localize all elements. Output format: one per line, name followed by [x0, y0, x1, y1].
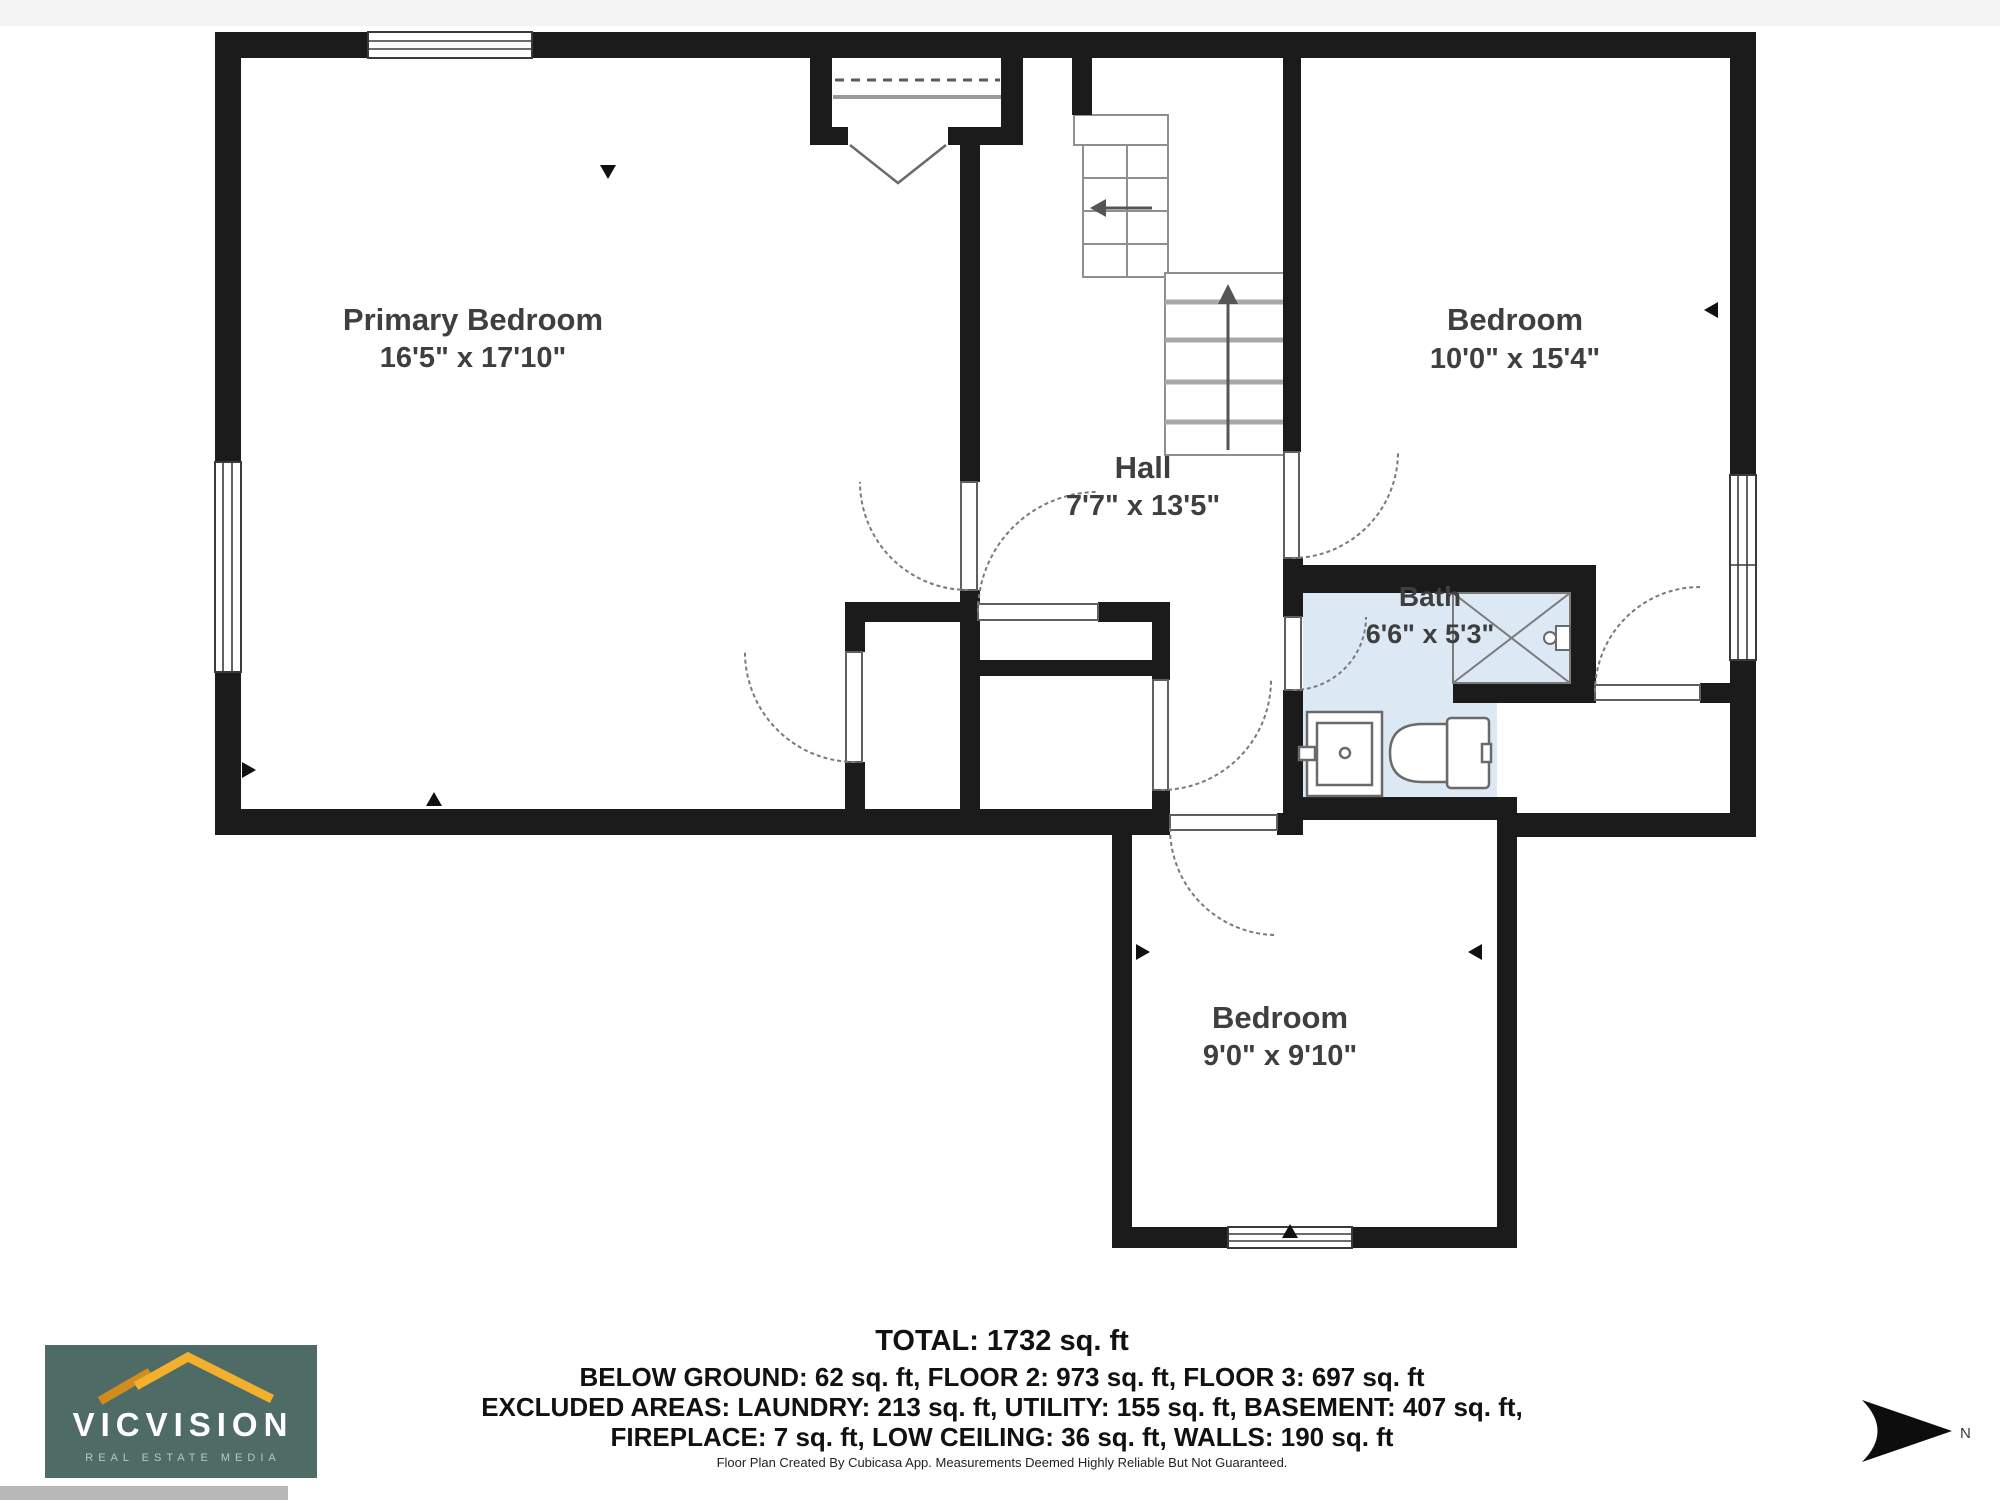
toilet [1390, 718, 1491, 788]
staircase [1074, 115, 1288, 455]
footer-disclaimer: Floor Plan Created By Cubicasa App. Meas… [717, 1455, 1288, 1470]
window-right [1730, 475, 1756, 660]
sink [1299, 712, 1382, 796]
door-primary-bedroom [860, 482, 977, 590]
camera-marker [600, 165, 616, 179]
room-label-bedroom-bottom: Bedroom [1212, 1000, 1348, 1035]
top-band [0, 0, 2000, 26]
footer-summary: TOTAL: 1732 sq. ft BELOW GROUND: 62 sq. … [481, 1325, 1523, 1470]
footer-total: TOTAL: 1732 sq. ft [875, 1325, 1129, 1357]
room-dims-hall: 7'7" x 13'5" [1066, 490, 1220, 522]
door-bedroom-bottom [1170, 815, 1277, 935]
camera-marker [242, 762, 256, 778]
room-dims-bedroom-right: 10'0" x 15'4" [1430, 343, 1600, 375]
camera-marker [1704, 302, 1718, 318]
door-primary-closet [745, 652, 862, 762]
logo-wordmark: VICVISION [73, 1406, 294, 1443]
window-top [368, 32, 532, 58]
room-dims-bedroom-bottom: 9'0" x 9'10" [1203, 1040, 1357, 1072]
floorplan-canvas: Primary Bedroom 16'5" x 17'10" Hall 7'7"… [0, 0, 2000, 1500]
room-label-primary-bedroom: Primary Bedroom [343, 302, 603, 337]
camera-marker [426, 792, 442, 806]
door-hall-closet [1153, 680, 1271, 790]
logo-tagline: REAL ESTATE MEDIA [85, 1452, 280, 1464]
closet-rod [833, 80, 1001, 97]
north-arrow-icon [1862, 1400, 1952, 1462]
footer-line3: FIREPLACE: 7 sq. ft, LOW CEILING: 36 sq.… [611, 1422, 1394, 1452]
floorplan-page: Primary Bedroom 16'5" x 17'10" Hall 7'7"… [0, 0, 2000, 1500]
room-dims-bath: 6'6" x 5'3" [1366, 619, 1495, 649]
camera-marker [1136, 944, 1150, 960]
compass: N [1862, 1400, 1971, 1462]
room-dims-primary-bedroom: 16'5" x 17'10" [380, 342, 566, 374]
bottom-strip [0, 1486, 288, 1500]
footer-line2: EXCLUDED AREAS: LAUNDRY: 213 sq. ft, UTI… [481, 1392, 1523, 1422]
camera-marker [1468, 944, 1482, 960]
door-bedroom-right [1284, 452, 1398, 558]
room-label-hall: Hall [1115, 450, 1172, 485]
room-label-bath: Bath [1399, 581, 1461, 612]
window-left [215, 462, 241, 672]
room-label-bedroom-right: Bedroom [1447, 302, 1583, 337]
closet-bifold-door [850, 145, 946, 183]
logo: VICVISION REAL ESTATE MEDIA [45, 1345, 317, 1478]
footer-line1: BELOW GROUND: 62 sq. ft, FLOOR 2: 973 sq… [579, 1362, 1424, 1392]
north-label: N [1960, 1425, 1971, 1442]
door-bedroom-nook-closet [1595, 587, 1700, 700]
